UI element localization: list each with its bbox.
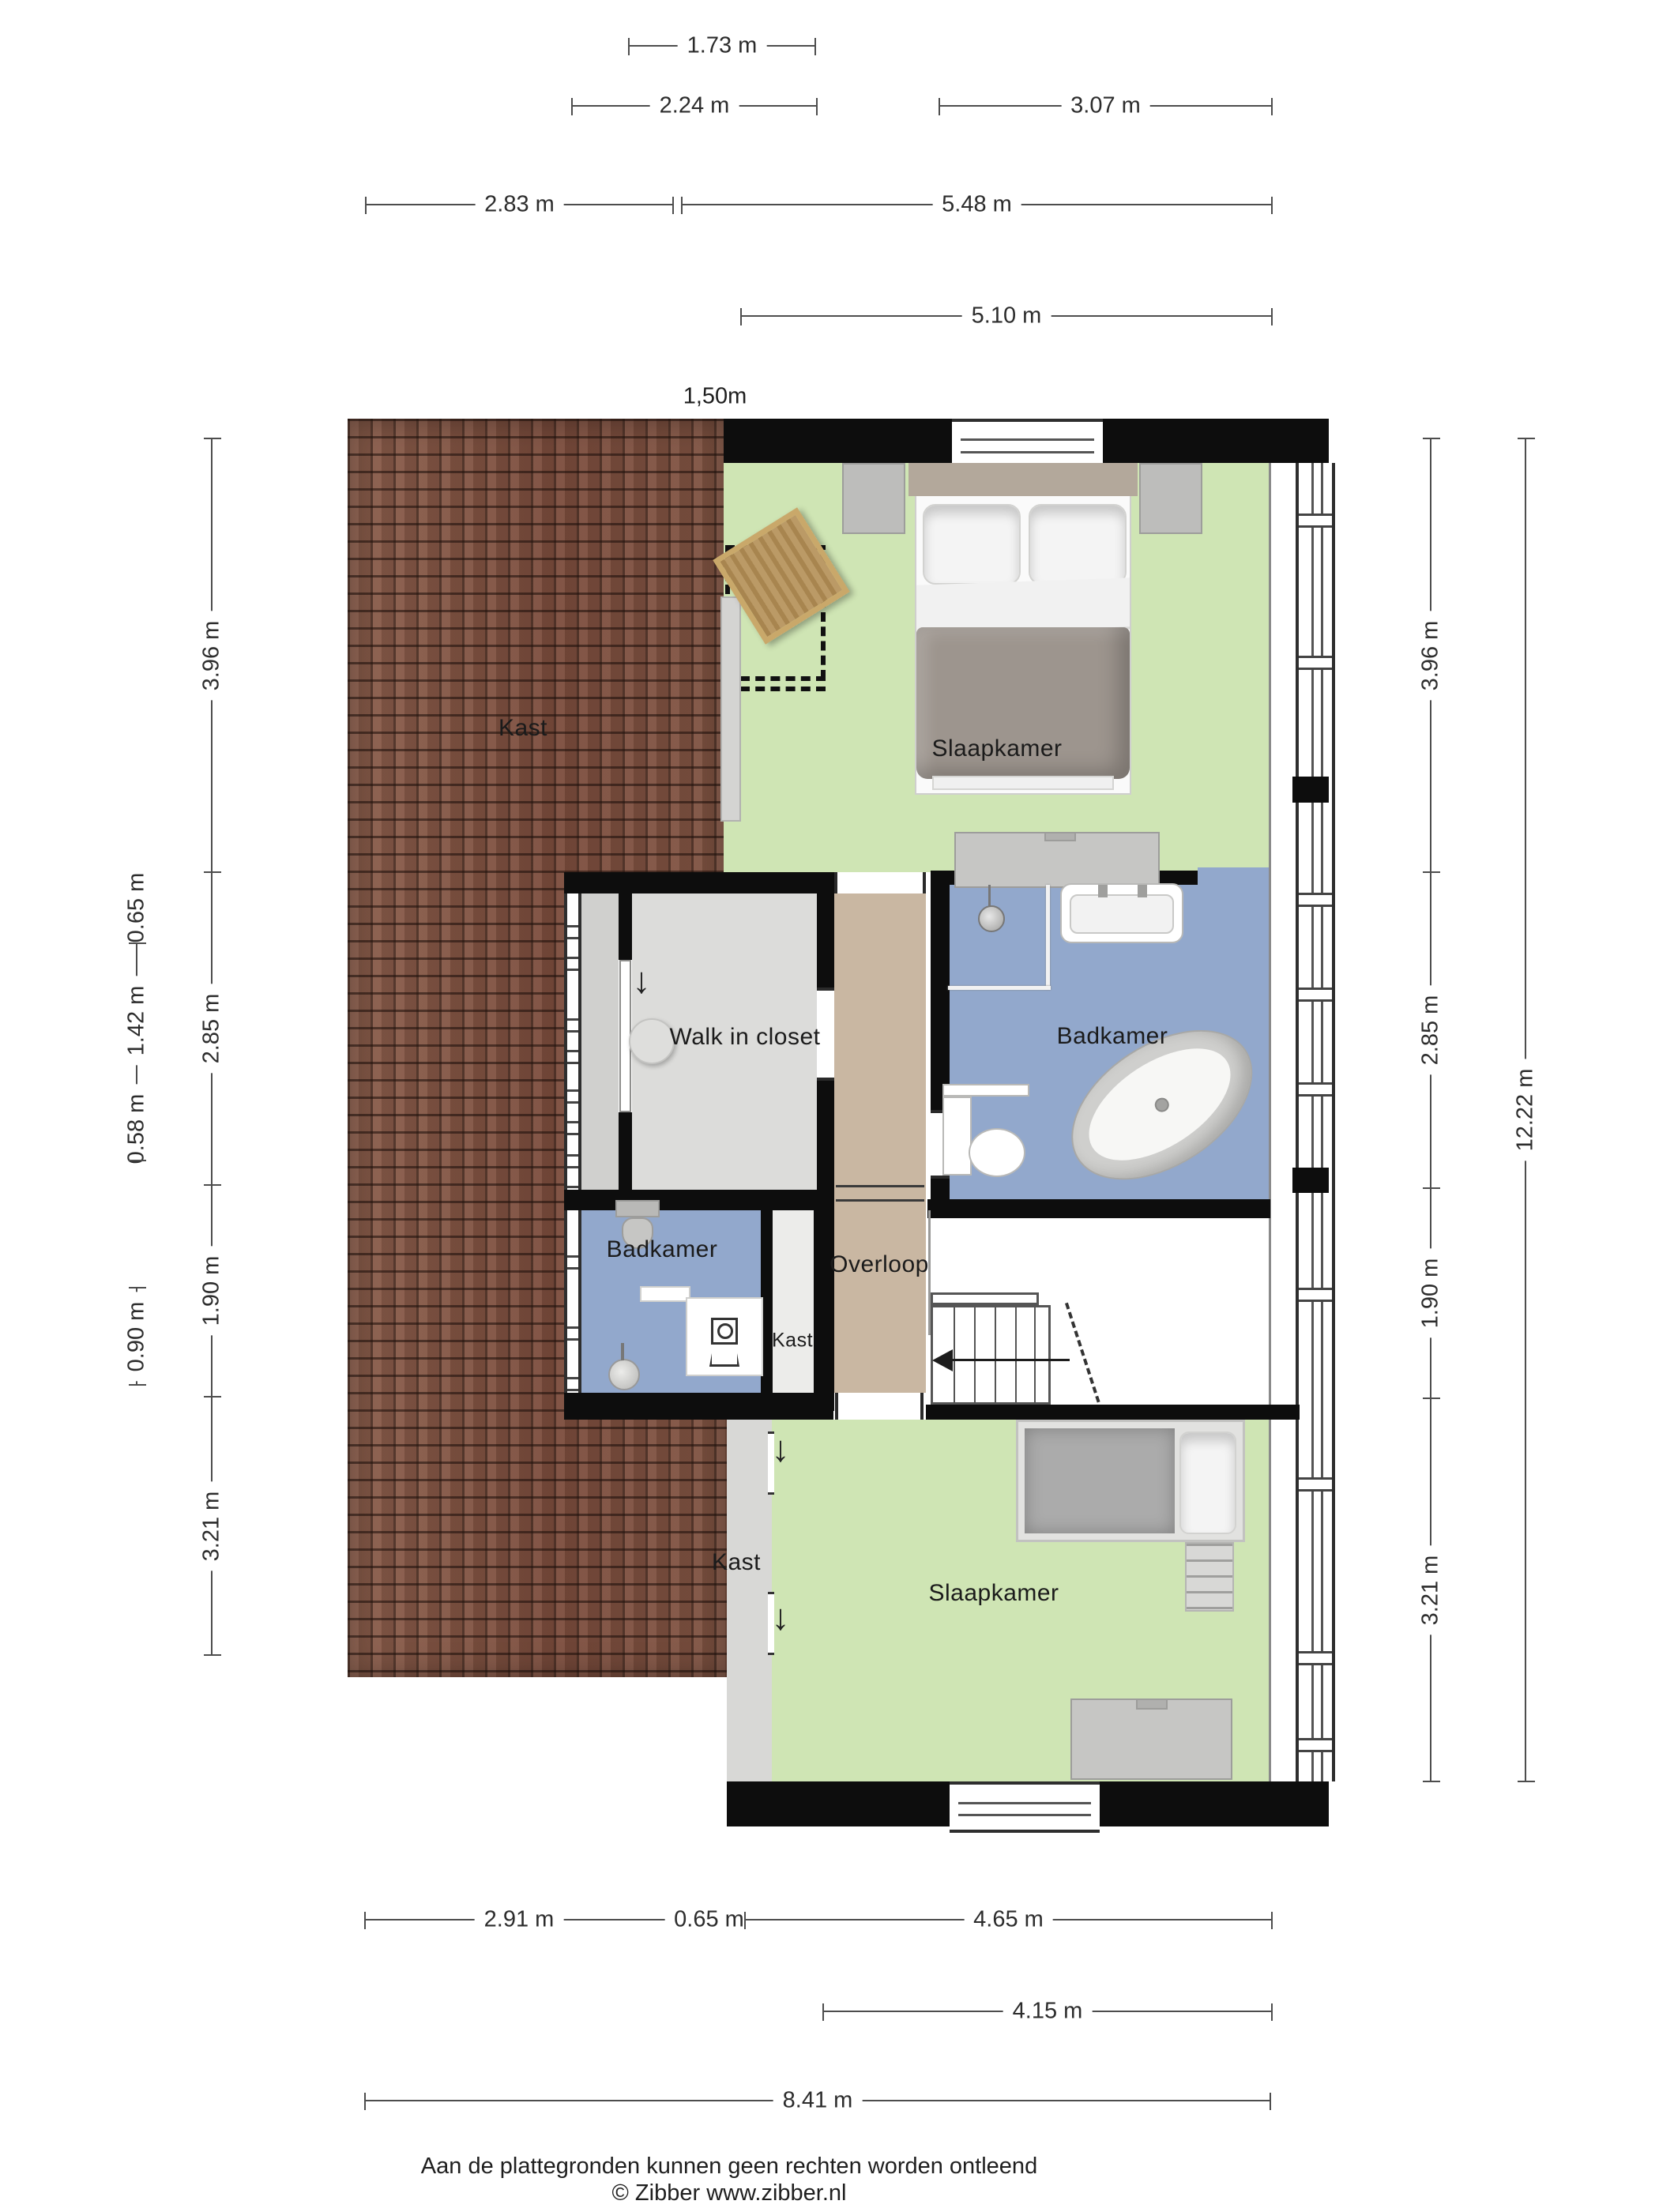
dimension-h: 5.10 m (741, 315, 1272, 317)
room-label: Kast (772, 1330, 813, 1352)
doorjamb (920, 1393, 924, 1420)
height-line-label: 1,50m (683, 384, 747, 410)
wall-top-left (724, 419, 952, 463)
bathtub-tap (1138, 885, 1147, 897)
dimension-v: 1.90 m (211, 1185, 213, 1397)
stair-landing (931, 1292, 1039, 1305)
bed-steps (1185, 1542, 1234, 1612)
single-bed (1016, 1420, 1245, 1542)
down-arrow-icon: ↓ (633, 961, 651, 998)
bathtub-built-in (1060, 883, 1183, 943)
wall-masterbath-west-a (931, 885, 950, 1110)
wall-closet-partition-a (619, 893, 632, 960)
bed-headboard (908, 463, 1138, 496)
footer-copyright: © Zibber www.zibber.nl (612, 2180, 847, 2206)
wall-masterbath-west-b (931, 1179, 950, 1202)
headroom-dash-bottom-2 (740, 687, 826, 691)
wardrobe-strip (720, 596, 741, 822)
doorjamb (817, 987, 834, 991)
dimension-v: 12.22 m (1525, 438, 1526, 1781)
down-arrow-icon: ↓ (772, 1598, 790, 1635)
threshold-line (836, 1185, 924, 1187)
room-edge-east (1269, 463, 1271, 1781)
pedestal-sink (608, 1359, 640, 1390)
dimension-v: 0.90 m (136, 1288, 137, 1385)
window-band-east (1296, 463, 1335, 1781)
bathtub-tap (1098, 885, 1108, 897)
bed-pillow-left (923, 504, 1021, 585)
dimension-h: 2.91 m (365, 1919, 673, 1920)
doorjamb (835, 1393, 838, 1420)
window-bottom (950, 1781, 1100, 1833)
room-label: Badkamer (1057, 1023, 1168, 1050)
wall-pier-east-2 (1292, 1168, 1329, 1193)
toilet-tank (942, 1097, 972, 1176)
dimension-v: 0.65 m (136, 872, 137, 943)
dimension-h: 5.48 m (682, 204, 1272, 205)
dimension-h: 4.15 m (823, 2011, 1272, 2012)
wall-masterbath-bottom (927, 1199, 1270, 1218)
headroom-dash-bottom-1 (740, 676, 826, 681)
nightstand-right (1139, 463, 1202, 534)
dimension-h: 1.73 m (629, 45, 815, 47)
wall-closet-top (564, 872, 833, 893)
wall-top-right (1103, 419, 1329, 463)
sink-faucet (621, 1343, 624, 1360)
toilet-small-tank (615, 1200, 660, 1217)
wall-bottom-right (1100, 1781, 1329, 1826)
dimension-v: 0.58 m (136, 1097, 137, 1161)
bed-mattress (1025, 1428, 1175, 1533)
threshold-line (836, 1199, 924, 1202)
shower-glass-h (948, 986, 1051, 990)
bed-footboard (932, 776, 1114, 790)
dimension-v: 3.96 m (211, 438, 213, 872)
room-label: Badkamer (607, 1236, 718, 1263)
floorplan-page: ↓ ↓ ↓ 1,50m KastSlaapkamerWalk in closet… (0, 0, 1659, 2212)
doorjamb (834, 872, 837, 893)
dimension-h: 0.65 m (673, 1919, 745, 1920)
dimension-h: 2.83 m (366, 204, 673, 205)
bed-pillow (1179, 1431, 1236, 1534)
dimension-v: 2.85 m (211, 872, 213, 1185)
shower-head (978, 905, 1005, 932)
dresser-bottom-bedroom (1070, 1698, 1232, 1780)
wall-bottom-left (727, 1781, 950, 1826)
wall-pier-east-1 (1292, 777, 1329, 803)
dimension-v: 3.21 m (1430, 1398, 1431, 1781)
shower-curtain-icon (709, 1346, 739, 1367)
wall-closet-east-a (817, 872, 834, 987)
toilet-shelf (942, 1084, 1029, 1097)
room-label: Kast (498, 715, 547, 742)
dimension-v: 3.21 m (211, 1397, 213, 1655)
shower-tray (686, 1297, 763, 1376)
hallway-floor (834, 893, 926, 1393)
wall-kast-east (814, 1210, 834, 1411)
down-arrow-icon: ↓ (772, 1430, 790, 1466)
window-top (952, 419, 1103, 469)
dimension-v: 1.90 m (1430, 1188, 1431, 1398)
dresser-handle (1044, 832, 1076, 841)
dresser-handle (1136, 1698, 1168, 1710)
wall-band34-east (926, 1405, 1300, 1420)
footer-disclaimer: Aan de plattegronden kunnen geen rechten… (421, 2154, 1037, 2180)
room-label: Slaapkamer (928, 1580, 1059, 1607)
closet-small-floor (773, 1210, 814, 1393)
closet-strip-floor (727, 1420, 772, 1781)
bathroom-master-floor-east (1198, 867, 1270, 891)
walkincloset-west-floor (575, 893, 619, 1190)
dimension-h: 2.24 m (572, 105, 817, 107)
half-wall (640, 1286, 690, 1302)
dimension-v: 1.42 m (136, 943, 137, 1097)
dimension-h: 4.65 m (745, 1919, 1272, 1920)
doorjamb (923, 872, 926, 893)
nightstand-left (842, 463, 905, 534)
room-label: Overloop (829, 1251, 929, 1278)
dimension-v: 3.96 m (1430, 438, 1431, 872)
stair-direction-line (951, 1359, 1070, 1361)
wall-closet-partition-b (619, 1112, 632, 1194)
dimension-v: 2.85 m (1430, 872, 1431, 1188)
dimension-h: 8.41 m (365, 2100, 1270, 2101)
wall-band23-west (564, 1190, 834, 1210)
room-label: Walk in closet (670, 1024, 821, 1051)
shower-glass-v (1046, 885, 1050, 989)
stair-direction-arrow-icon (932, 1349, 953, 1371)
dimension-h: 3.07 m (939, 105, 1272, 107)
bed-pillow-right (1029, 504, 1127, 585)
room-label: Kast (712, 1549, 761, 1576)
wall-band34-west (564, 1393, 833, 1420)
round-rug (629, 1018, 675, 1064)
toilet-bowl (969, 1128, 1025, 1177)
room-label: Slaapkamer (931, 735, 1062, 762)
window-band-west (564, 893, 581, 1411)
